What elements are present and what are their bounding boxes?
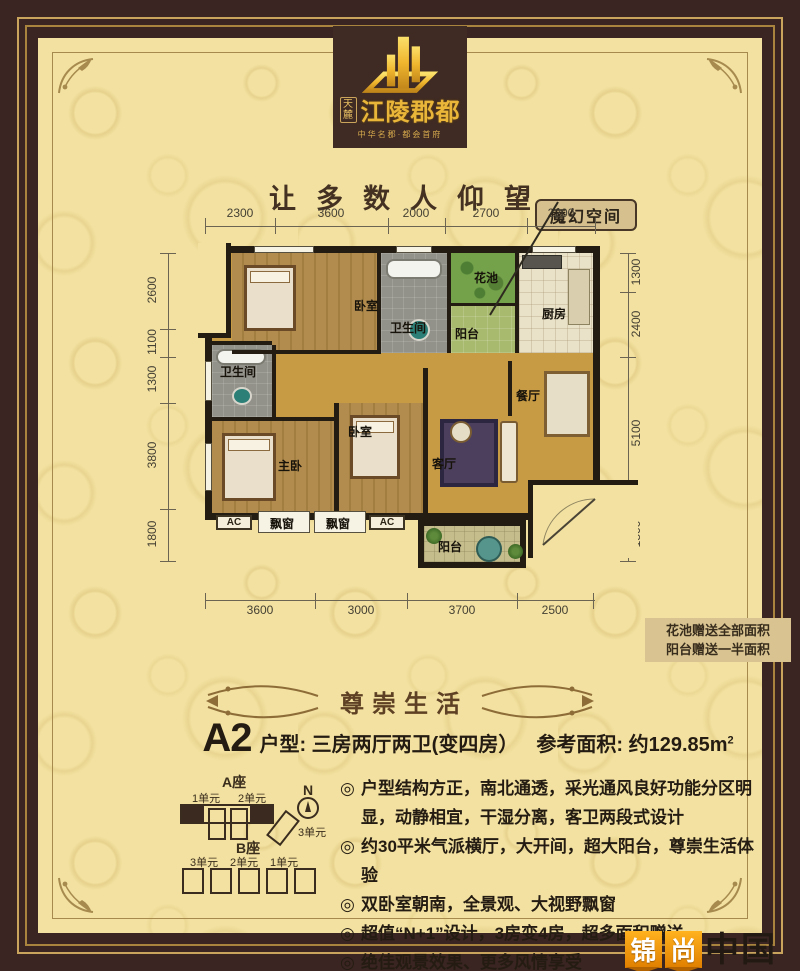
site-key-map: A座 1单元 2单元 N 3单元 B座 3单元 2单元 1单元: [166, 770, 336, 905]
a-unit-3-label: 3单元: [298, 824, 326, 840]
brand-subtitle: 中华名郡·都会首府: [358, 129, 443, 140]
building-outline: [238, 868, 260, 894]
building-fill: [182, 806, 204, 822]
building-logo-icon: [354, 34, 446, 96]
brand-logo: 天麓 江陵郡都 中华名郡·都会首府: [335, 28, 465, 146]
bay-window-label-right: 飘窗: [326, 515, 350, 532]
building-outline: [210, 868, 232, 894]
corner-flourish-icon: [56, 56, 96, 96]
poster-page: 天麓 江陵郡都 中华名郡·都会首府 让多数人仰望 魔幻空间 2300 3600 …: [0, 0, 800, 971]
unit-type: 户型: 三房两厅两卫(变四房）: [259, 728, 518, 757]
bullet-icon: ◎: [340, 919, 355, 948]
entry-door-icon: [533, 485, 633, 553]
gift-note: 花池赠送全部面积 阳台赠送一半面积: [645, 618, 791, 662]
corner-flourish-icon: [56, 875, 96, 915]
ac-unit-left: AC: [216, 515, 252, 530]
building-outline: [294, 868, 316, 894]
unit-area: 参考面积: 约129.85m2: [536, 728, 733, 757]
bay-window-label-left: 飘窗: [270, 515, 294, 532]
watermark-badge-2: 尚: [665, 931, 702, 968]
bullet-icon: ◎: [340, 774, 355, 803]
building-outline: [266, 868, 288, 894]
flourish-right-icon: [478, 681, 598, 721]
north-compass-icon: N: [296, 784, 320, 819]
flourish-left-icon: [202, 681, 322, 721]
feature-item: ◎户型结构方正，南北通透，采光通风良好功能分区明显，动静相宜，干湿分离，客卫两段…: [340, 774, 768, 832]
building-outline: [208, 808, 226, 840]
building-outline: [230, 808, 248, 840]
section-title: 尊崇生活: [332, 684, 468, 719]
bullet-icon: ◎: [340, 890, 355, 919]
area-superscript: 2: [728, 734, 734, 746]
building-outline: [182, 868, 204, 894]
watermark-badge-1: 锦: [625, 931, 662, 968]
building-fill: [250, 806, 272, 822]
unit-code: A2: [202, 716, 251, 761]
bullet-icon: ◎: [340, 948, 355, 971]
section-title-row: 尊崇生活: [38, 681, 762, 721]
feature-item: ◎约30平米气派横厅，大开间，超大阳台，尊崇生活体验: [340, 832, 768, 890]
dim-chain-left: 2600 1100 1300 3800 1800: [150, 253, 184, 565]
watermark-suffix: 中国: [705, 931, 777, 969]
dim-chain-bottom: 3600 3000 3700 2500: [205, 585, 597, 619]
room-balcony-bottom: 阳台: [418, 520, 526, 568]
corner-flourish-icon: [704, 56, 744, 96]
entry-notch: [528, 480, 638, 558]
gift-note-line2: 阳台赠送一半面积: [666, 640, 770, 659]
feature-item: ◎双卧室朝南，全景观、大视野飘窗: [340, 890, 768, 919]
gift-note-line1: 花池赠送全部面积: [666, 621, 770, 640]
block-a-label: A座: [222, 772, 246, 792]
callout-leader-line: [458, 190, 568, 320]
watermark: 锦 尚 中国: [625, 931, 777, 969]
brand-name: 江陵郡都: [361, 92, 461, 127]
plan-step-patch: [198, 243, 231, 338]
bullet-icon: ◎: [340, 832, 355, 861]
ac-unit-right: AC: [369, 515, 405, 530]
brand-seal: 天麓: [340, 97, 357, 123]
unit-summary-row: A2 户型: 三房两厅两卫(变四房） 参考面积: 约129.85m2: [188, 716, 748, 761]
poster-paper: 天麓 江陵郡都 中华名郡·都会首府 让多数人仰望 魔幻空间 2300 3600 …: [38, 38, 762, 933]
